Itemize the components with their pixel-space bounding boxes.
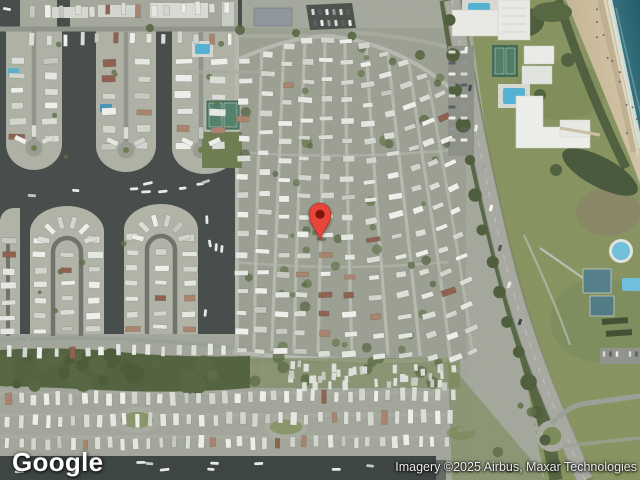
map-pin-icon[interactable] (306, 201, 334, 241)
imagery-attribution: Imagery ©2025 Airbus, Maxar Technologies (395, 460, 637, 474)
map-viewport[interactable]: Google Imagery ©2025 Airbus, Maxar Techn… (0, 0, 640, 480)
google-logo[interactable]: Google (12, 447, 103, 478)
